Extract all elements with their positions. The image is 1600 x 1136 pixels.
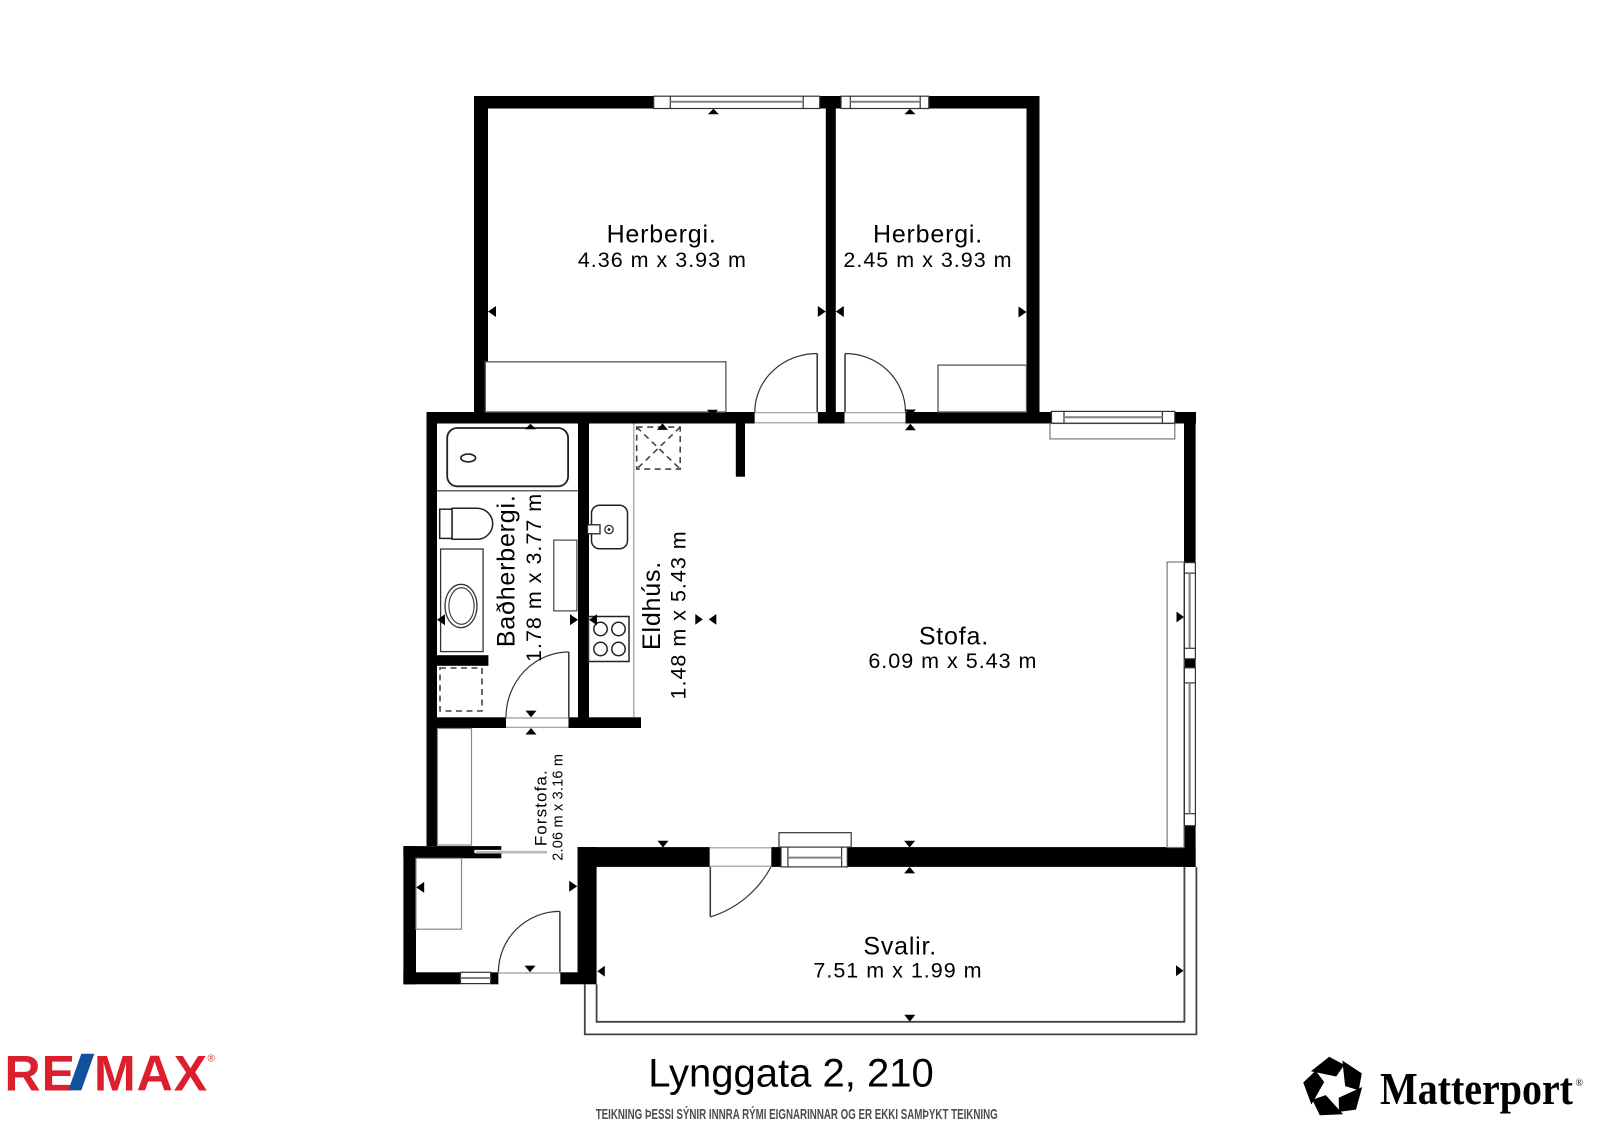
svg-text:Lynggata 2, 210: Lynggata 2, 210: [648, 1052, 933, 1096]
svg-text:Eldhús.: Eldhús.: [638, 561, 666, 650]
svg-text:2.45 m x 3.93 m: 2.45 m x 3.93 m: [843, 248, 1012, 272]
svg-text:2.06 m x 3.16 m: 2.06 m x 3.16 m: [551, 754, 567, 861]
svg-text:Stofa.: Stofa.: [919, 623, 989, 651]
svg-text:TEIKNING ÞESSI SÝNIR INNRA RÝM: TEIKNING ÞESSI SÝNIR INNRA RÝMI EIGNARIN…: [596, 1105, 998, 1123]
svg-text:1.78 m x 3.77 m: 1.78 m x 3.77 m: [522, 493, 546, 662]
svg-text:4.36 m x 3.93 m: 4.36 m x 3.93 m: [578, 248, 747, 272]
svg-text:1.48 m x 5.43 m: 1.48 m x 5.43 m: [667, 530, 691, 699]
svg-text:RE: RE: [5, 1045, 76, 1101]
svg-text:6.09 m x 5.43 m: 6.09 m x 5.43 m: [868, 649, 1037, 673]
svg-text:Herbergi.: Herbergi.: [873, 221, 983, 249]
svg-text:®: ®: [1576, 1078, 1584, 1089]
svg-text:Forstofa.: Forstofa.: [531, 769, 550, 846]
svg-text:7.51 m x 1.99 m: 7.51 m x 1.99 m: [813, 958, 982, 982]
svg-text:Matterport: Matterport: [1380, 1063, 1574, 1114]
svg-text:Baðherbergi.: Baðherbergi.: [493, 494, 521, 647]
svg-text:Herbergi.: Herbergi.: [607, 221, 717, 249]
svg-text:Svalir.: Svalir.: [863, 933, 937, 961]
svg-text:MAX: MAX: [94, 1045, 208, 1101]
svg-text:®: ®: [208, 1054, 216, 1065]
